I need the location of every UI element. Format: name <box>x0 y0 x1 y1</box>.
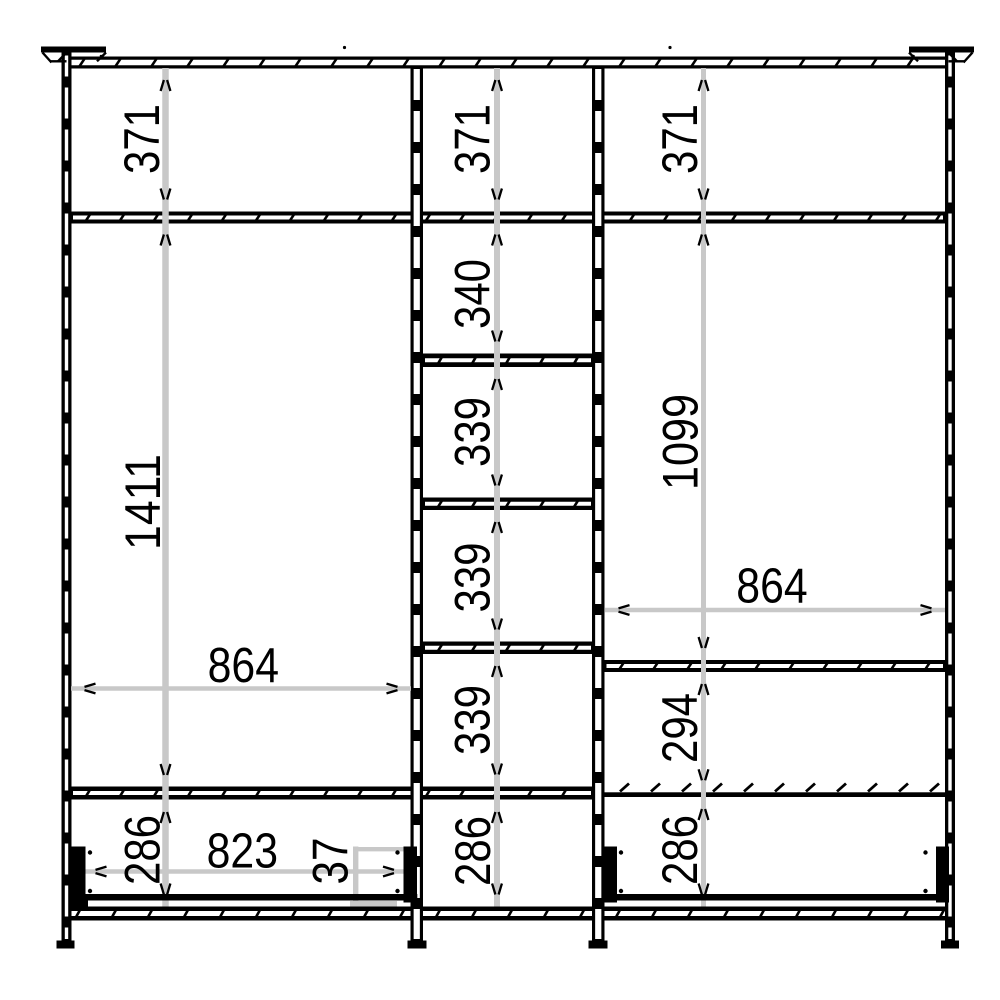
svg-text:286: 286 <box>115 815 171 885</box>
svg-text:864: 864 <box>208 639 279 693</box>
svg-text:339: 339 <box>445 543 501 613</box>
svg-text:371: 371 <box>445 104 501 174</box>
svg-text:37: 37 <box>303 838 359 885</box>
svg-text:823: 823 <box>207 824 278 878</box>
svg-text:339: 339 <box>445 397 501 467</box>
svg-text:286: 286 <box>445 816 501 886</box>
svg-text:294: 294 <box>652 693 708 763</box>
svg-text:371: 371 <box>114 104 170 174</box>
svg-text:340: 340 <box>445 259 501 329</box>
svg-text:864: 864 <box>736 560 807 614</box>
svg-text:339: 339 <box>445 685 501 755</box>
svg-text:1411: 1411 <box>115 454 171 550</box>
svg-text:1099: 1099 <box>653 394 709 490</box>
svg-text:371: 371 <box>652 104 708 174</box>
svg-text:286: 286 <box>652 815 708 885</box>
